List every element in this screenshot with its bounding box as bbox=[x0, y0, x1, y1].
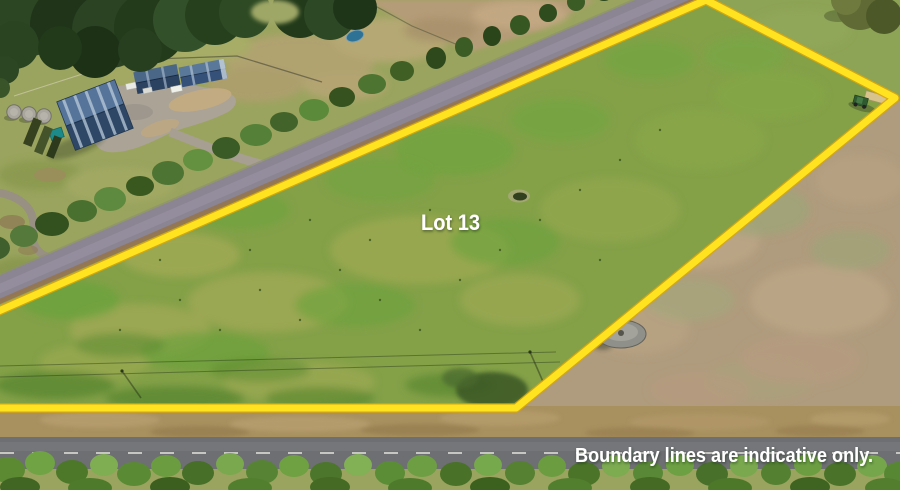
lot-label: Lot 13 bbox=[421, 210, 480, 235]
disclaimer-text: Boundary lines are indicative only. bbox=[575, 445, 873, 467]
aerial-photo: Lot 13 Boundary lines are indicative onl… bbox=[0, 0, 900, 490]
pond bbox=[508, 190, 530, 203]
aerial-photo-svg: Lot 13 Boundary lines are indicative onl… bbox=[0, 0, 900, 490]
